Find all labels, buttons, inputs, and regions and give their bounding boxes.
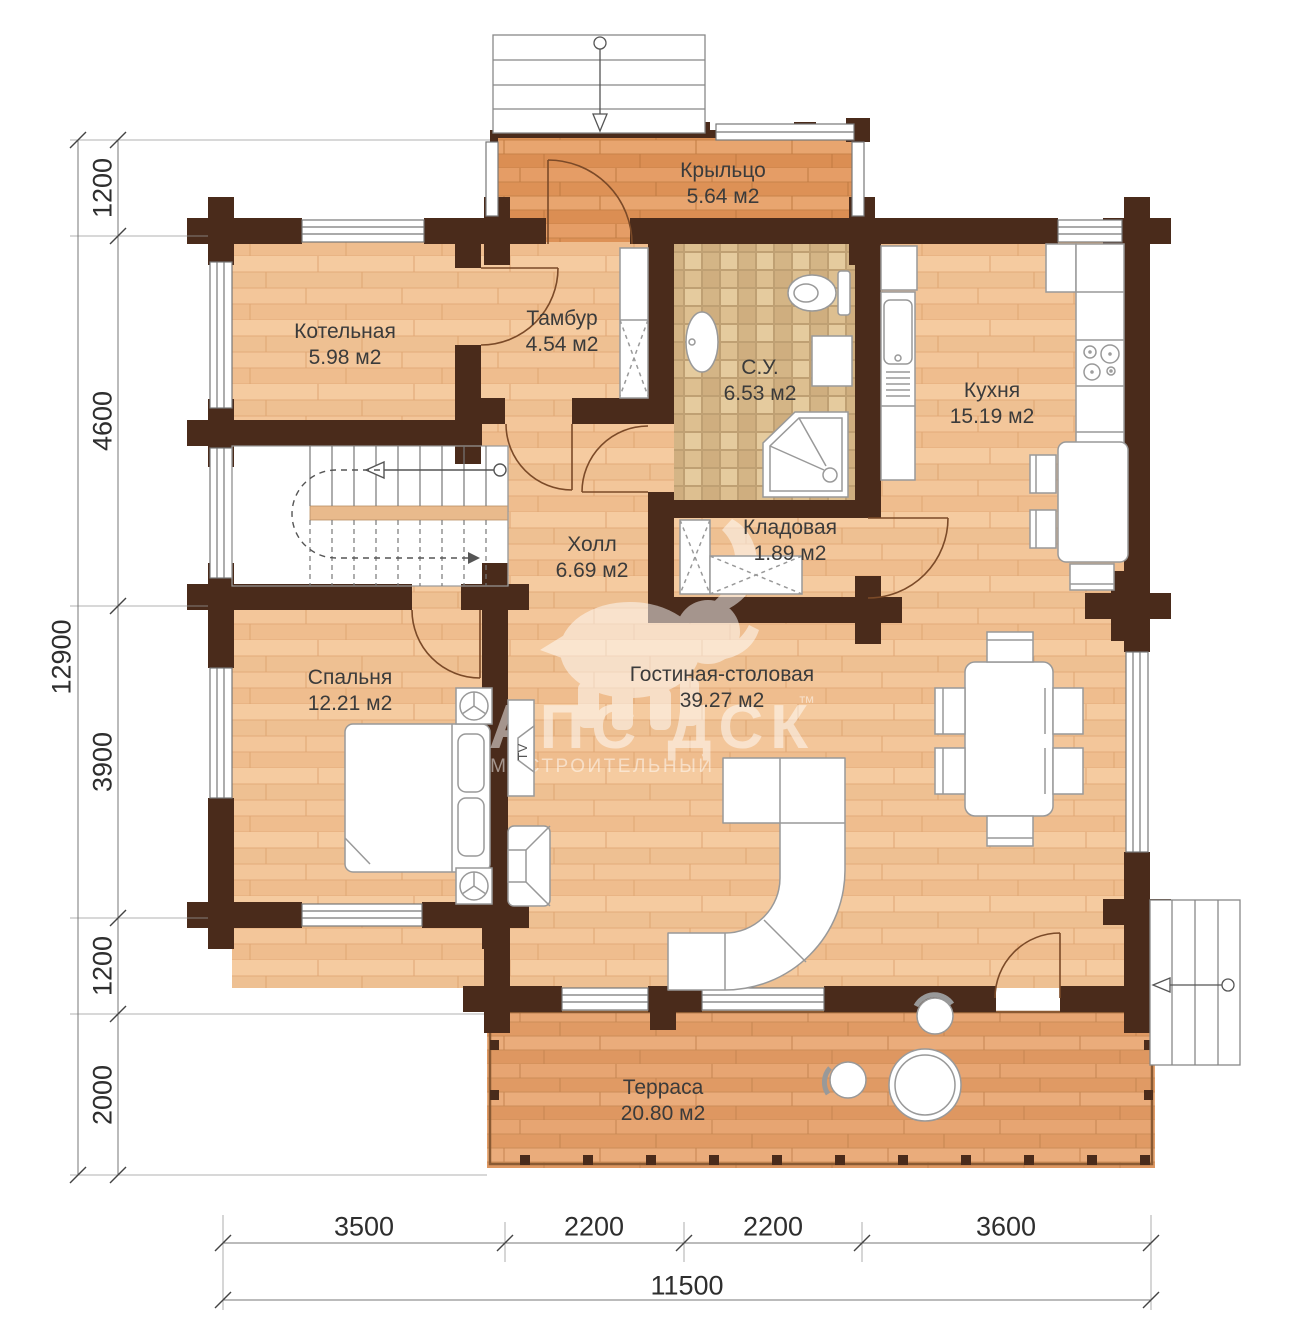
room-area: 12.21 м2 — [308, 691, 393, 717]
dining-chair — [935, 688, 965, 734]
dim-left-total: 12900 — [47, 619, 78, 694]
room-label-vestibule: Тамбур 4.54 м2 — [526, 306, 599, 358]
room-area: 20.80 м2 — [621, 1101, 706, 1127]
room-name: С.У. — [724, 355, 797, 381]
dim-bottom-2: 2200 — [564, 1212, 624, 1243]
room-name: Терраса — [621, 1075, 706, 1101]
room-name: Спальня — [308, 665, 393, 691]
dining-chair — [987, 632, 1033, 662]
room-area: 15.19 м2 — [950, 404, 1035, 430]
room-name: Гостиная-столовая — [630, 662, 814, 688]
dim-left-1: 1200 — [88, 158, 119, 218]
room-area: 6.69 м2 — [556, 558, 629, 584]
nightstand — [456, 868, 492, 904]
dim-bottom-3: 2200 — [743, 1212, 803, 1243]
bed — [345, 724, 490, 872]
dim-left-3: 3900 — [88, 732, 119, 792]
dim-left-2: 4600 — [88, 391, 119, 451]
kitchen-sink-counter — [881, 292, 915, 480]
nightstand — [456, 688, 492, 724]
room-label-boiler: Котельная 5.98 м2 — [294, 319, 396, 371]
terrace-table — [889, 1049, 961, 1121]
tv-label: TV — [515, 743, 530, 760]
dining-chair — [935, 748, 965, 794]
dim-left-4: 1200 — [88, 936, 119, 996]
room-area: 39.27 м2 — [630, 688, 814, 714]
room-name: Тамбур — [526, 306, 599, 332]
terrace-steps — [1150, 900, 1240, 1065]
room-label-living: Гостиная-столовая 39.27 м2 — [630, 662, 814, 714]
room-area: 6.53 м2 — [724, 381, 797, 407]
terrace-chair — [916, 995, 953, 1034]
room-name: Кладовая — [743, 515, 837, 541]
bathroom-sink — [686, 312, 718, 372]
room-name: Котельная — [294, 319, 396, 345]
room-label-storage: Кладовая 1.89 м2 — [743, 515, 837, 567]
kitchen-fridge — [881, 246, 917, 290]
washing-machine — [812, 336, 852, 386]
dim-bottom-total: 11500 — [650, 1271, 723, 1302]
armchair — [508, 826, 550, 906]
room-area: 1.89 м2 — [743, 541, 837, 567]
room-label-bathroom: С.У. 6.53 м2 — [724, 355, 797, 407]
room-label-terrace: Терраса 20.80 м2 — [621, 1075, 706, 1127]
room-label-bedroom: Спальня 12.21 м2 — [308, 665, 393, 717]
room-name: Крыльцо — [680, 158, 766, 184]
room-name: Холл — [556, 532, 629, 558]
room-area: 4.54 м2 — [526, 332, 599, 358]
dining-chair — [987, 816, 1033, 846]
room-area: 5.98 м2 — [294, 345, 396, 371]
room-label-porch: Крыльцо 5.64 м2 — [680, 158, 766, 210]
dim-bottom-1: 3500 — [334, 1212, 394, 1243]
floor-plan-page: АПС ДСК ™ ДОМОСТРОИТЕЛЬНЫЙ КОМБИНАТ — [0, 0, 1297, 1344]
entry-steps — [493, 35, 705, 133]
dim-bottom-4: 3600 — [976, 1212, 1036, 1243]
room-name: Кухня — [950, 378, 1035, 404]
dim-left-5: 2000 — [88, 1065, 119, 1125]
room-label-kitchen: Кухня 15.19 м2 — [950, 378, 1035, 430]
vestibule-closet — [620, 248, 648, 398]
room-area: 5.64 м2 — [680, 184, 766, 210]
room-label-hall: Холл 6.69 м2 — [556, 532, 629, 584]
